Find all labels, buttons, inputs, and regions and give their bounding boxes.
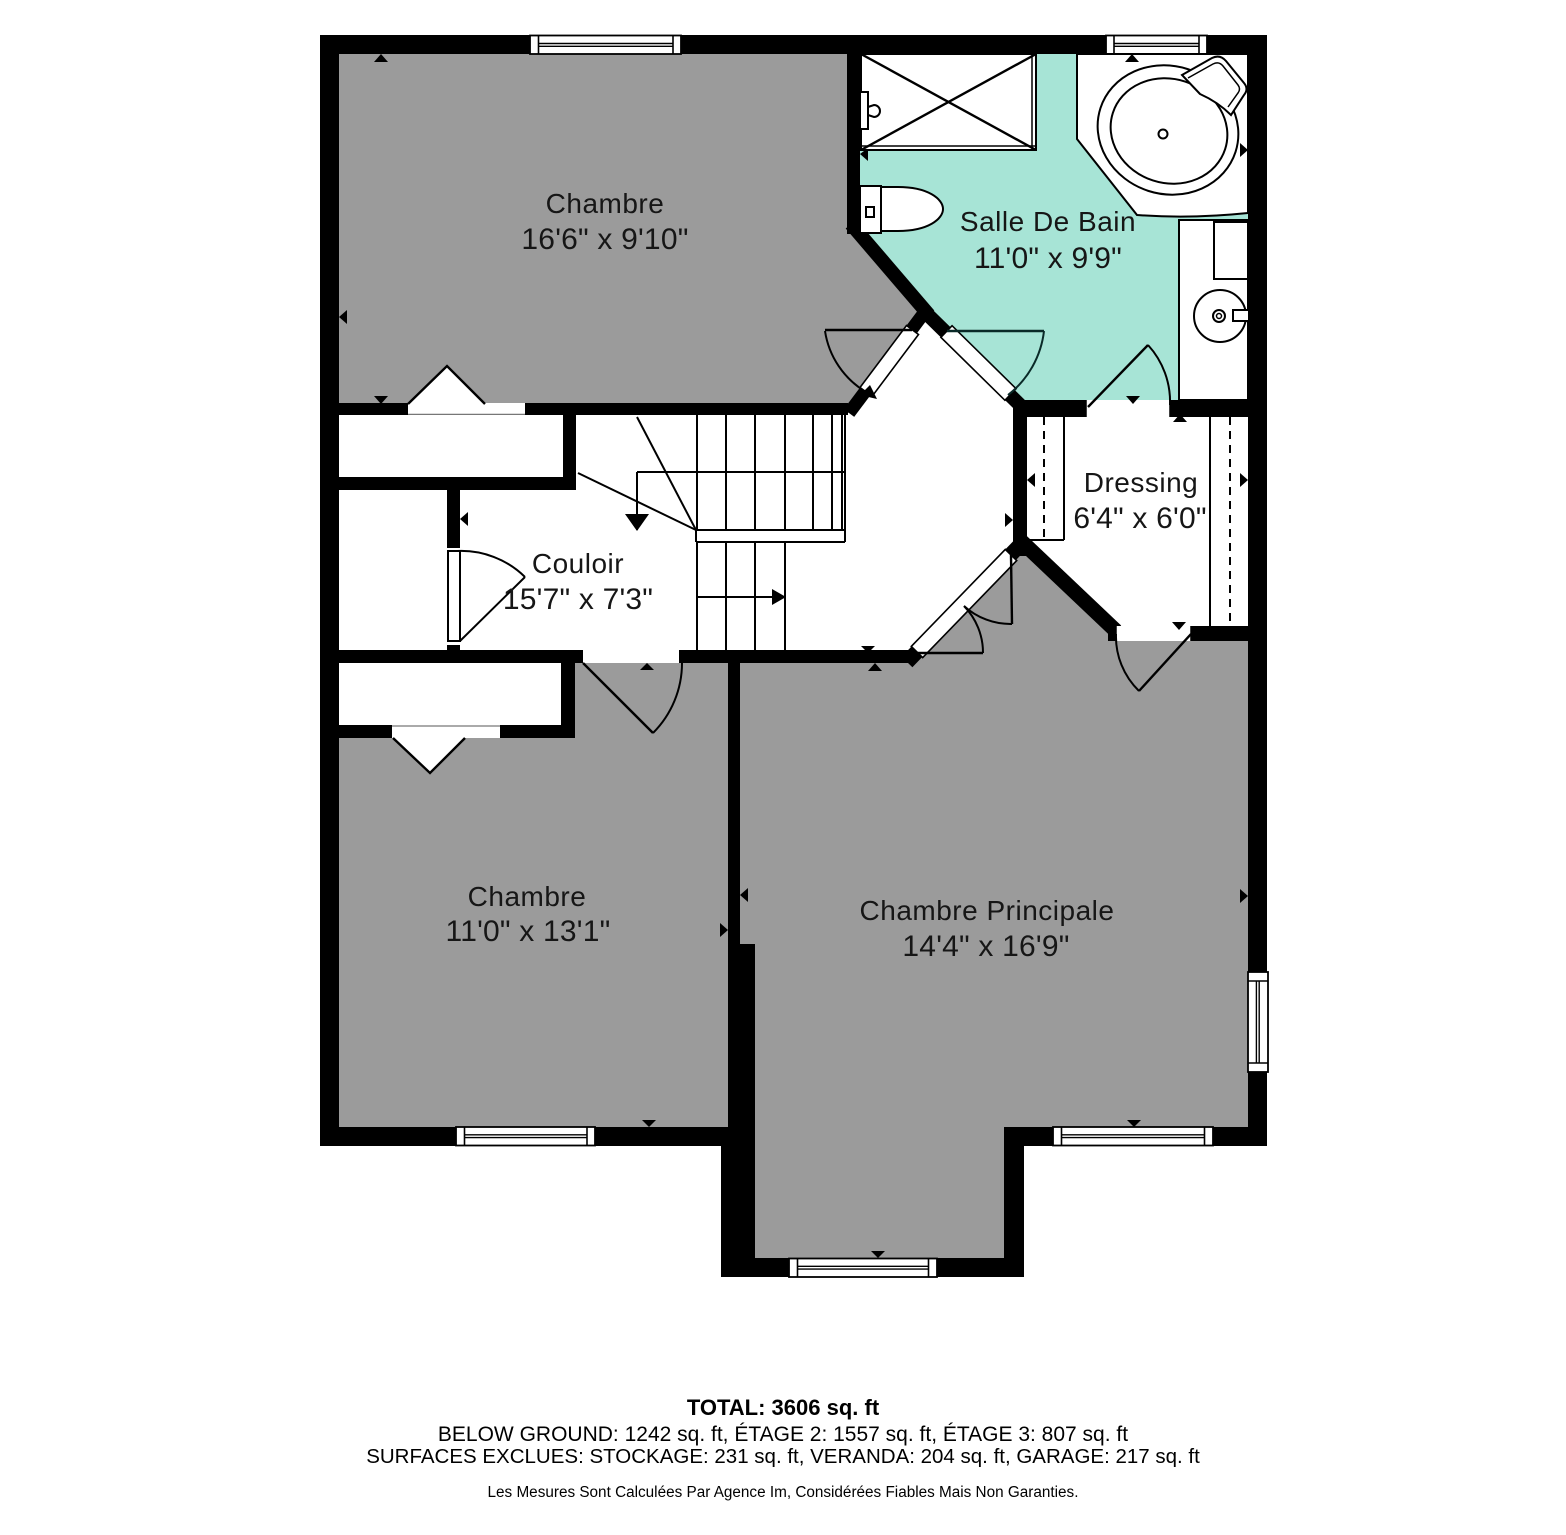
svg-text:Chambre: Chambre [546, 188, 665, 219]
svg-text:Dressing: Dressing [1084, 467, 1198, 498]
svg-text:Couloir: Couloir [532, 548, 624, 579]
svg-text:6'4" x 6'0": 6'4" x 6'0" [1073, 502, 1206, 535]
svg-text:Chambre Principale: Chambre Principale [860, 895, 1115, 926]
svg-text:16'6" x 9'10": 16'6" x 9'10" [521, 223, 688, 256]
svg-text:11'0" x 9'9": 11'0" x 9'9" [974, 242, 1122, 275]
svg-text:11'0" x 13'1": 11'0" x 13'1" [446, 915, 611, 948]
svg-text:14'4" x 16'9": 14'4" x 16'9" [902, 930, 1069, 963]
svg-text:Salle De Bain: Salle De Bain [960, 206, 1136, 237]
svg-text:15'7" x 7'3": 15'7" x 7'3" [503, 583, 653, 616]
svg-text:Chambre: Chambre [468, 881, 587, 912]
